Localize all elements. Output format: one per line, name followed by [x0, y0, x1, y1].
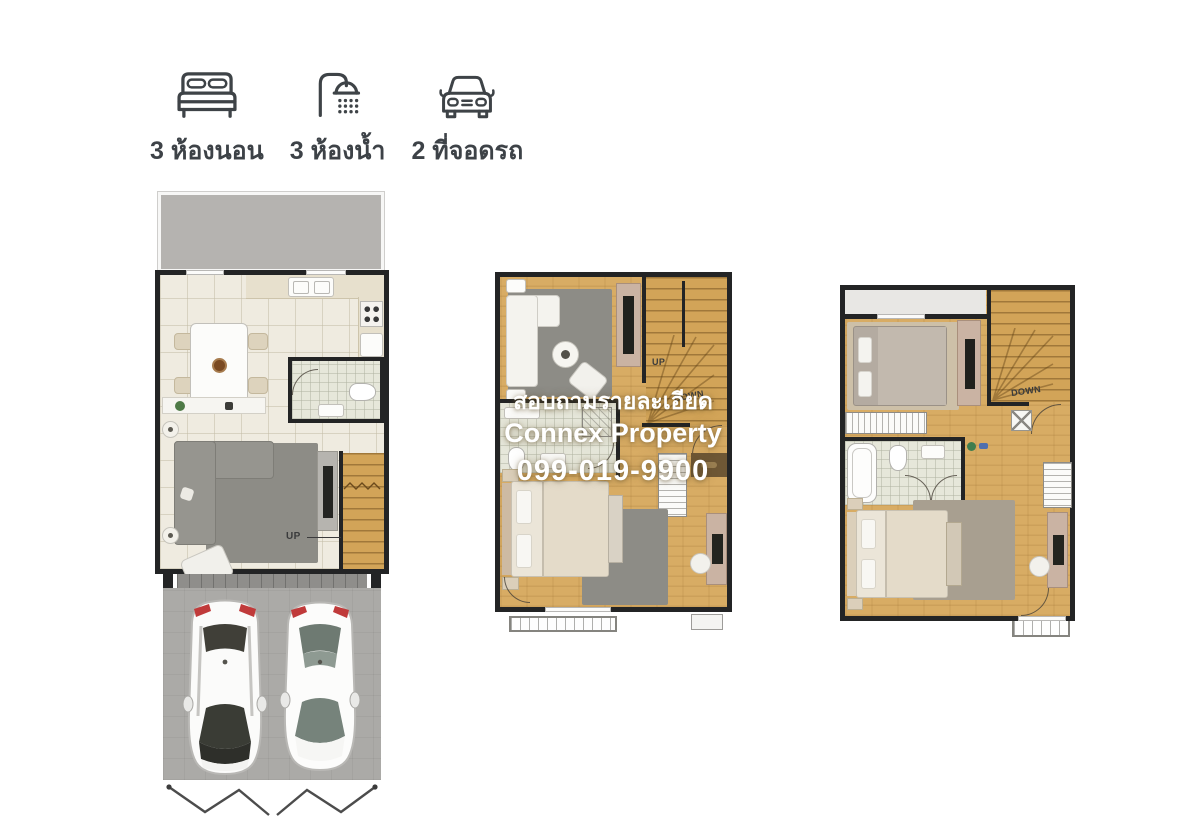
balcony-railing — [509, 616, 617, 632]
decor-item — [979, 443, 988, 449]
roof-ledge — [845, 290, 986, 314]
stair-railing — [682, 281, 685, 347]
shower-icon — [311, 66, 365, 122]
break-line — [343, 481, 384, 491]
tv-console — [616, 283, 641, 367]
bathroom-sink — [921, 445, 945, 459]
wardrobe — [1043, 462, 1072, 508]
parking-count-label: 2 ที่จอดรถ — [411, 131, 523, 171]
bed-3 — [856, 510, 948, 598]
bedroom-count-label: 3 ห้องนอน — [150, 131, 264, 171]
watermark-line-3: 099-019-9900 — [488, 452, 738, 490]
door-arc — [1031, 404, 1061, 434]
car-1 — [181, 596, 269, 778]
door-arc — [1021, 588, 1049, 616]
wall — [961, 437, 965, 509]
refrigerator — [360, 333, 383, 357]
feature-summary: 3 ห้องนอน 3 ห้องน้ำ — [150, 66, 523, 171]
bed-master — [511, 481, 609, 577]
porch — [177, 574, 367, 588]
kitchen-sink — [288, 277, 334, 297]
watermark-line-2: Connex Property — [488, 416, 738, 452]
headboard — [847, 512, 856, 596]
bathroom-count-label: 3 ห้องน้ำ — [290, 131, 386, 171]
stairs-1 — [343, 453, 384, 569]
dining-chair — [248, 377, 268, 394]
desk — [706, 513, 727, 585]
linen-cabinet — [1011, 410, 1032, 431]
balcony-railing — [1012, 621, 1070, 637]
desk — [1047, 512, 1068, 588]
feature-parking: 2 ที่จอดรถ — [411, 72, 523, 171]
bed-2 — [853, 326, 947, 406]
stairs-up-label: UP — [652, 357, 665, 367]
feature-bathrooms: 3 ห้องน้ำ — [290, 66, 386, 171]
wall — [987, 290, 991, 406]
balcony-door — [545, 607, 611, 612]
side-table — [162, 421, 179, 438]
bed-bench — [608, 495, 623, 563]
bathroom-3 — [845, 441, 961, 505]
wall — [987, 402, 1029, 406]
wardrobe — [845, 412, 927, 434]
floor-plan-1: UP — [155, 192, 395, 826]
coffee-table — [552, 341, 579, 368]
car-2 — [279, 598, 361, 774]
desk-chair — [1029, 556, 1050, 577]
floor-plan-3: DOWN — [840, 285, 1075, 645]
feature-bedrooms: 3 ห้องนอน — [150, 70, 264, 171]
window — [186, 270, 224, 275]
floorplan-sheet: 3 ห้องนอน 3 ห้องน้ำ — [0, 0, 1200, 838]
living-dining-unit: UP — [155, 270, 389, 574]
plant — [967, 442, 976, 451]
window — [877, 314, 925, 319]
bathroom-sink — [318, 404, 344, 417]
nightstand — [847, 498, 863, 510]
watermark: สอบถามรายละเอียด Connex Property 099-019… — [488, 386, 738, 490]
bathtub — [847, 443, 877, 503]
dining-chair — [248, 333, 268, 350]
bathroom-1 — [288, 357, 384, 423]
stairs-label-line — [307, 537, 341, 538]
door-arc — [292, 369, 318, 395]
stove — [360, 301, 383, 327]
sideboard — [162, 397, 266, 414]
toilet — [349, 383, 376, 401]
desk-chair — [690, 553, 711, 574]
door-arc — [931, 475, 957, 501]
gate-swing-marks — [165, 784, 379, 820]
toilet — [889, 445, 907, 471]
side-table — [506, 279, 526, 293]
bed-bench — [946, 522, 962, 586]
dining-table — [190, 323, 248, 407]
car-icon — [437, 72, 497, 122]
headboard — [502, 483, 511, 575]
tv-console — [317, 451, 338, 531]
bed-icon — [175, 70, 239, 122]
door-arc — [905, 475, 931, 501]
door-arc — [504, 577, 530, 603]
sectional-sofa — [174, 441, 216, 545]
sofa — [506, 295, 538, 387]
side-table — [162, 527, 179, 544]
terrace — [158, 192, 384, 272]
tv-console — [957, 320, 981, 406]
third-floor-unit: DOWN — [840, 285, 1075, 621]
stairs-up-label: UP — [286, 531, 301, 542]
nightstand — [847, 598, 863, 610]
wall — [642, 277, 646, 383]
watermark-line-1: สอบถามรายละเอียด — [488, 386, 738, 416]
ac-unit — [691, 614, 723, 630]
